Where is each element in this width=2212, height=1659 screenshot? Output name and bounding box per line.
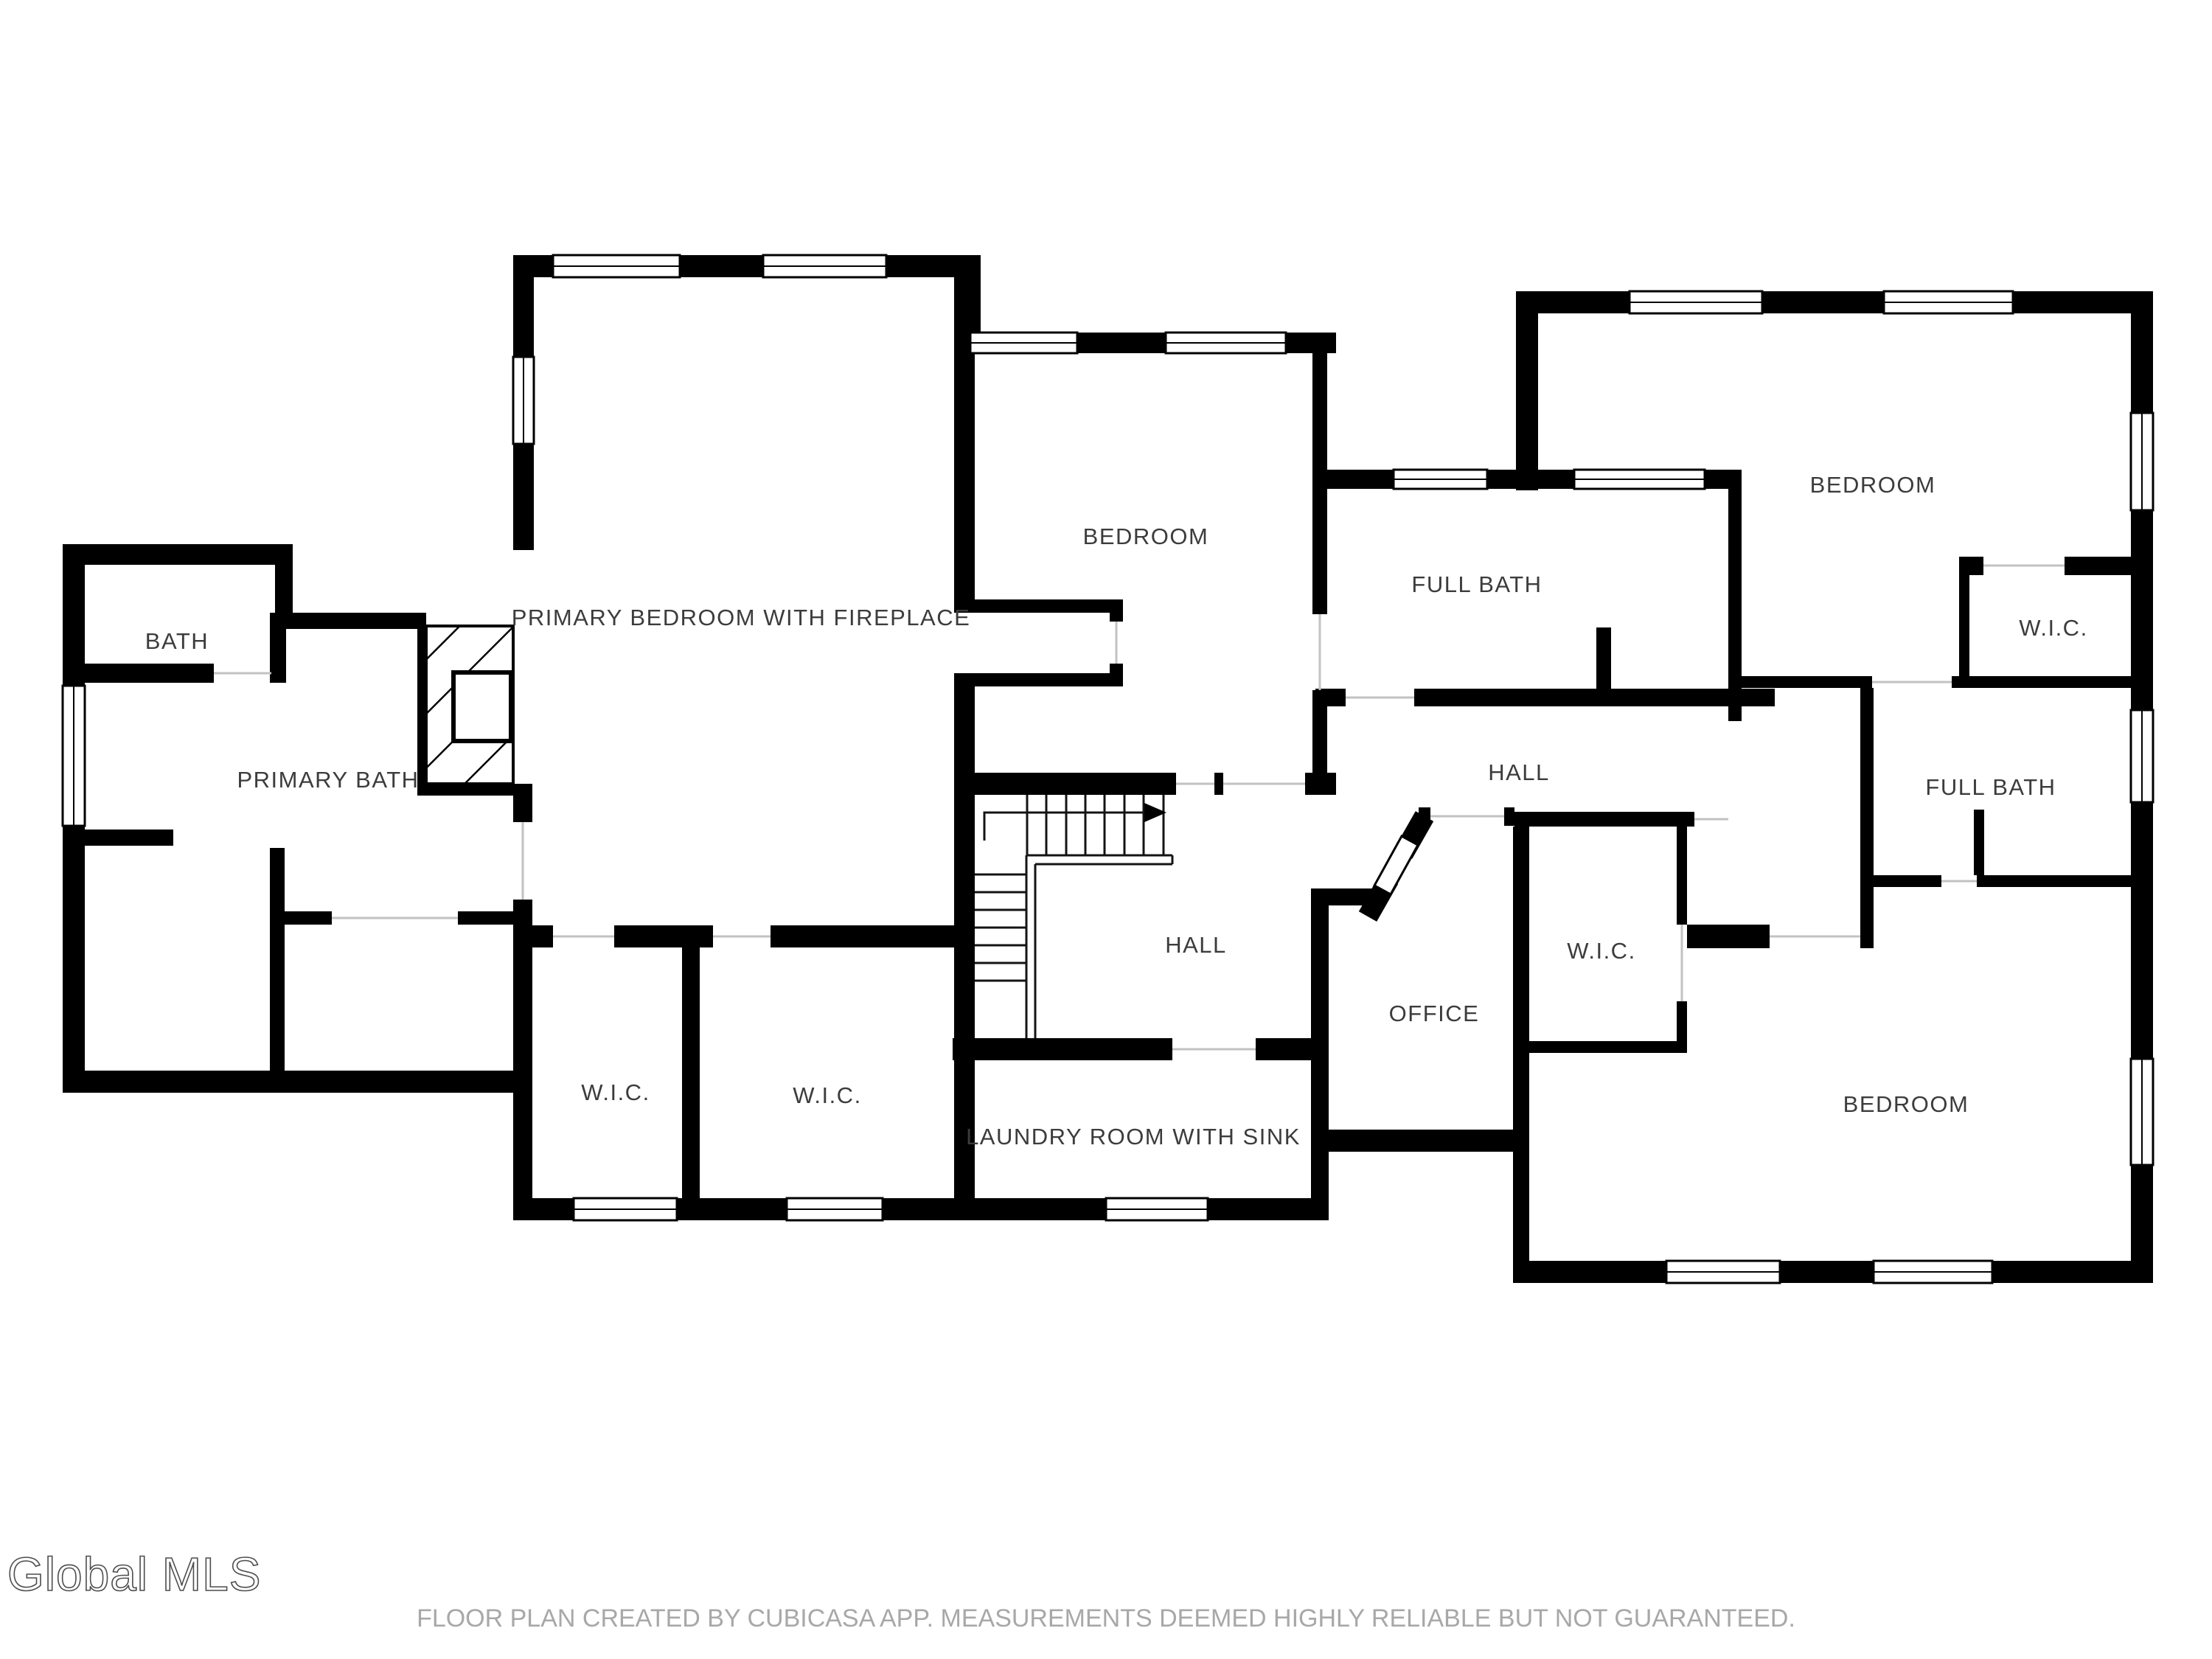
footer-disclaimer: FLOOR PLAN CREATED BY CUBICASA APP. MEAS… [0,1604,2212,1633]
room-label-wic-top-right: W.I.C. [2019,615,2087,641]
room-label-office: OFFICE [1389,1001,1480,1026]
window [1874,1261,1992,1283]
window [970,333,1077,353]
window [574,1198,677,1220]
window [63,686,85,826]
stairs-direction-line [984,813,1144,841]
room-label-primary-bedroom: PRIMARY BEDROOM WITH FIREPLACE [512,605,971,630]
window [2131,413,2153,510]
room-label-wic-right: W.I.C. [793,1082,861,1108]
global-mls-logo: Global MLS [7,1547,261,1601]
floorplan-svg: BATH PRIMARY BATH PRIMARY BEDROOM WITH F… [0,0,2212,1659]
window [1166,333,1286,353]
window [2131,710,2153,802]
room-label-hall-upper: HALL [1488,759,1550,785]
window [1106,1198,1208,1220]
window [1666,1261,1780,1283]
floorplan-page: BATH PRIMARY BATH PRIMARY BEDROOM WITH F… [0,0,2212,1659]
room-label-bedroom-top-right: BEDROOM [1810,472,1936,498]
window [1884,291,2013,313]
stairs [975,795,1172,1038]
room-label-wic-left: W.I.C. [581,1079,650,1105]
window [1394,470,1487,489]
window [763,255,886,277]
room-label-full-bath-right: FULL BATH [1925,774,2056,800]
room-label-primary-bath: PRIMARY BATH [237,767,419,793]
office-diagonal-window [1374,836,1418,894]
window [1630,291,1762,313]
room-label-hall-lower: HALL [1165,932,1227,958]
window [553,255,680,277]
window [787,1198,883,1220]
window [513,357,534,444]
room-label-laundry: LAUNDRY ROOM WITH SINK [966,1124,1301,1150]
room-label-wic-center: W.I.C. [1567,938,1635,964]
window [2131,1059,2153,1165]
room-label-bath: BATH [145,628,209,654]
room-label-bedroom-center: BEDROOM [1083,524,1209,549]
fireplace [426,626,513,784]
fireplace-firebox [453,672,511,741]
window [1574,470,1705,489]
room-label-bedroom-bottom-right: BEDROOM [1843,1091,1969,1117]
room-label-full-bath-center: FULL BATH [1411,571,1542,597]
office-diagonal-wall [1368,816,1425,917]
